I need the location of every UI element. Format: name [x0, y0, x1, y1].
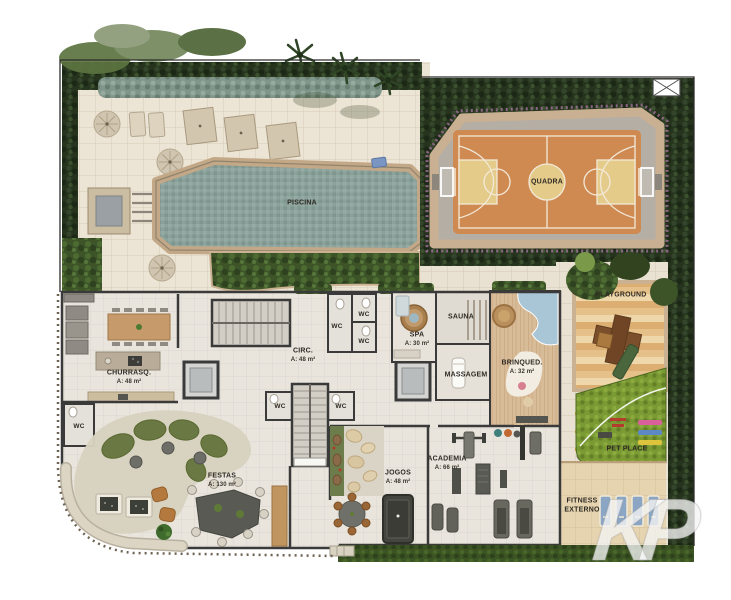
label-wc-1: WC [331, 323, 342, 331]
area-churrasqueira: A: 48 m² [117, 379, 141, 385]
label-fitness-externo: FITNESS EXTERNO [564, 497, 599, 515]
label-brinquedoteca: BRINQUED. [501, 360, 542, 369]
label-wc-5: WC [274, 403, 285, 411]
label-jogos: JOGOS [385, 470, 411, 479]
elevator-1 [184, 362, 218, 398]
label-wc-2: WC [358, 311, 369, 319]
island-counter [96, 352, 160, 370]
label-festas: FESTAS [208, 473, 236, 482]
elevator-2 [396, 362, 430, 400]
label-wc-6: WC [335, 403, 346, 411]
label-pet-place: PET PLACE [606, 446, 647, 455]
stairs-1 [212, 300, 290, 346]
area-festas: A: 130 m² [208, 482, 236, 488]
area-academia: A: 66 m² [435, 465, 459, 471]
zen-garden [330, 426, 384, 496]
label-playground: PLAYGROUND [595, 292, 646, 301]
label-wc-3: WC [358, 338, 369, 346]
floor-plan: PISCINA QUADRA CHURRASQ. A: 48 m² CIRC. … [0, 0, 731, 600]
label-spa: SPA [410, 332, 424, 341]
area-brinquedoteca: A: 32 m² [510, 369, 534, 375]
area-jogos: A: 48 m² [386, 479, 410, 485]
label-circulacao: CIRC. [293, 348, 313, 357]
kp-watermark-logo: KP [590, 494, 686, 566]
label-sauna: SAUNA [448, 314, 474, 323]
label-churrasqueira: CHURRASQ. [107, 370, 151, 379]
label-wc-4: WC [73, 423, 84, 431]
label-academia: ACADEMIA [427, 456, 466, 465]
label-piscina: PISCINA [287, 200, 317, 209]
brinquedoteca-room [490, 291, 560, 426]
area-spa: A: 30 m² [405, 341, 429, 347]
north-box [653, 79, 680, 96]
label-massagem: MASSAGEM [445, 372, 488, 381]
dining-table [108, 308, 170, 346]
stairs-2 [292, 384, 328, 466]
label-quadra: QUADRA [531, 179, 563, 188]
area-circulacao: A: 48 m² [291, 357, 315, 363]
